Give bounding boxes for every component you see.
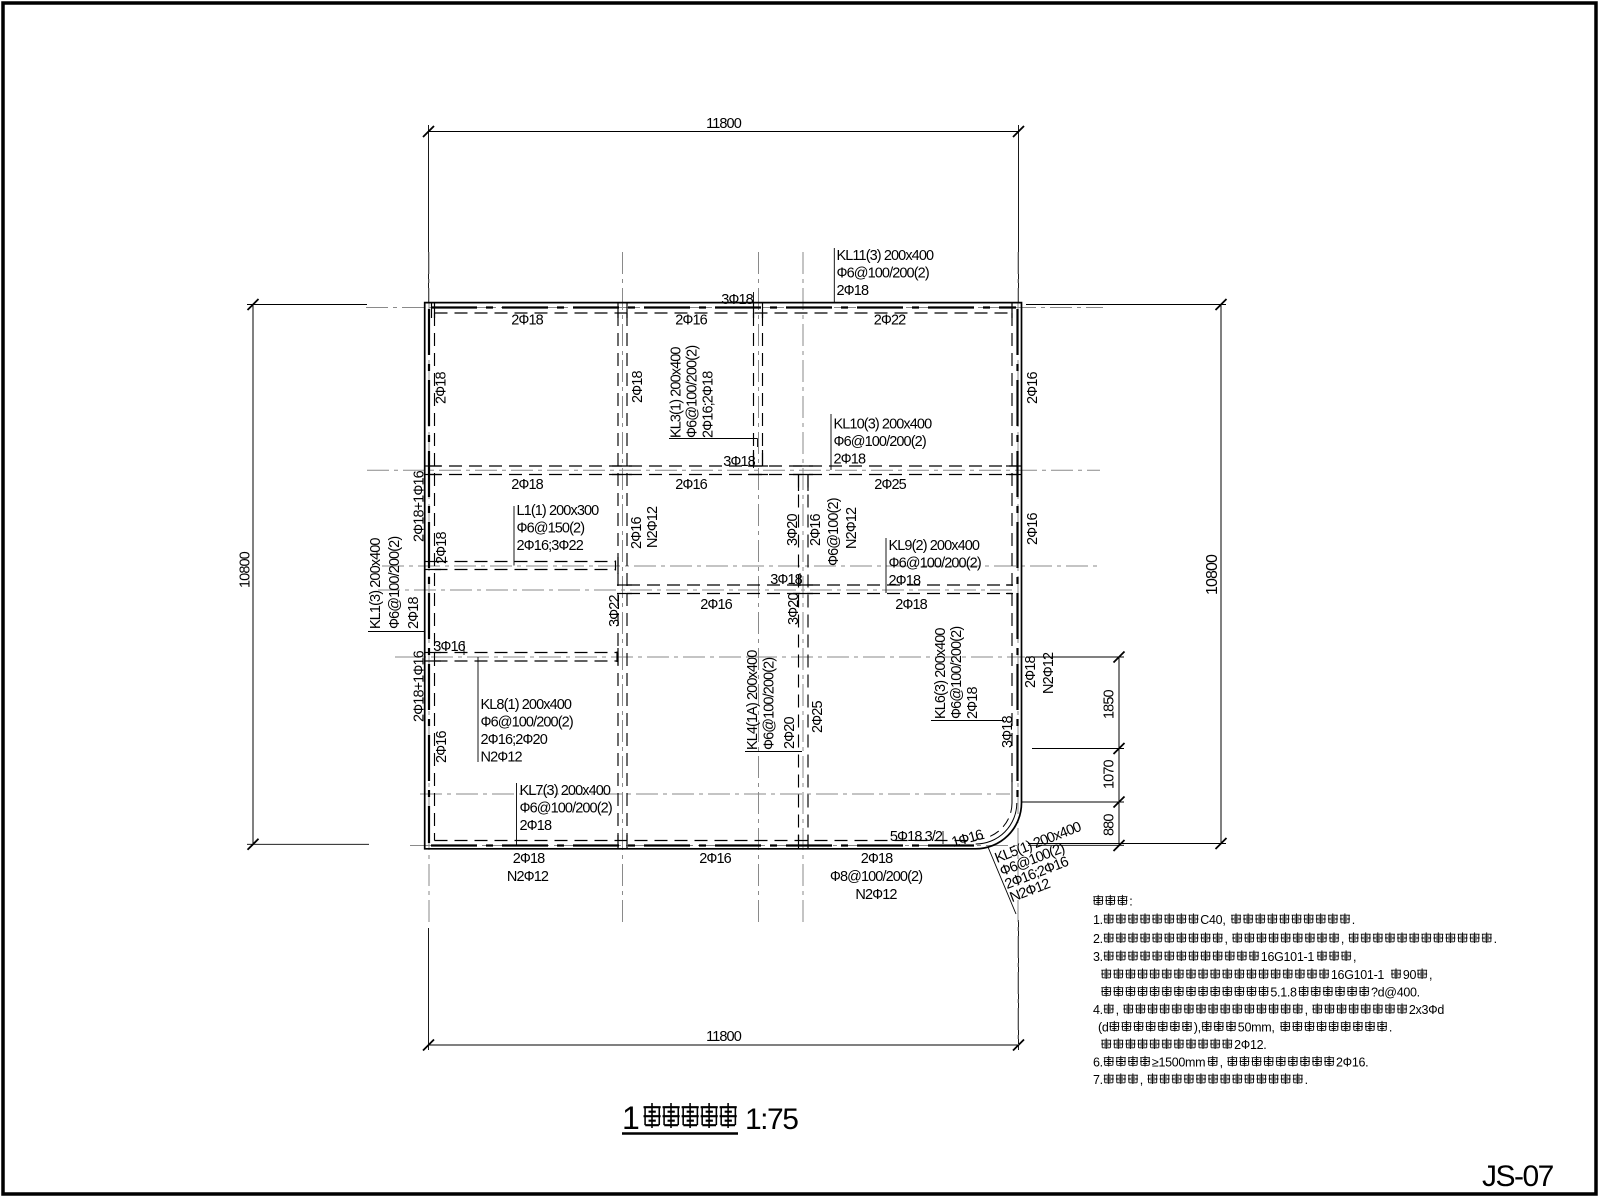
svg-text:880: 880 bbox=[1102, 814, 1118, 836]
svg-text:2Ф25: 2Ф25 bbox=[874, 477, 906, 493]
svg-text:2Ф16: 2Ф16 bbox=[699, 851, 731, 867]
svg-text:7.: 7. bbox=[1093, 1073, 1103, 1087]
svg-text:2Ф18: 2Ф18 bbox=[895, 597, 927, 613]
svg-text:KL6(3) 200x400: KL6(3) 200x400 bbox=[933, 628, 949, 719]
svg-text:2Ф18: 2Ф18 bbox=[837, 283, 869, 299]
svg-text:3Ф18: 3Ф18 bbox=[721, 292, 753, 308]
svg-text:N2Ф12: N2Ф12 bbox=[645, 506, 661, 548]
svg-text:2Ф25: 2Ф25 bbox=[810, 701, 826, 733]
svg-text:Ф6@150(2): Ф6@150(2) bbox=[517, 521, 585, 537]
svg-text:?d@400.: ?d@400. bbox=[1371, 986, 1420, 1000]
svg-text:KL1(3) 200x400: KL1(3) 200x400 bbox=[368, 538, 384, 629]
svg-text:1850: 1850 bbox=[1102, 690, 1118, 719]
svg-text:3Ф20: 3Ф20 bbox=[785, 514, 801, 546]
svg-text:N2Ф12: N2Ф12 bbox=[507, 869, 549, 885]
svg-text:3Ф20: 3Ф20 bbox=[786, 593, 802, 625]
svg-text:6.: 6. bbox=[1093, 1056, 1103, 1070]
svg-text:5.1.8: 5.1.8 bbox=[1270, 986, 1297, 1000]
svg-text:Ф6@100/200(2): Ф6@100/200(2) bbox=[685, 346, 701, 438]
svg-text:,: , bbox=[1116, 1003, 1119, 1017]
svg-text:2Ф18: 2Ф18 bbox=[630, 371, 646, 403]
svg-text:2Ф18: 2Ф18 bbox=[889, 573, 921, 589]
svg-text:KL4(1A) 200x400: KL4(1A) 200x400 bbox=[745, 650, 761, 750]
svg-text:,: , bbox=[1341, 932, 1344, 946]
svg-text:Ф6@100/200(2): Ф6@100/200(2) bbox=[387, 537, 403, 629]
svg-text:Ф6@100(2): Ф6@100(2) bbox=[826, 498, 842, 566]
svg-text:3Ф18: 3Ф18 bbox=[723, 454, 755, 470]
svg-text:2Ф16: 2Ф16 bbox=[675, 313, 707, 329]
svg-text:2Ф12.: 2Ф12. bbox=[1234, 1038, 1266, 1052]
svg-text:KL7(3) 200x400: KL7(3) 200x400 bbox=[520, 783, 611, 799]
svg-text:N2Ф12: N2Ф12 bbox=[855, 887, 897, 903]
svg-text:2Ф18+1Ф16: 2Ф18+1Ф16 bbox=[412, 470, 428, 542]
svg-text:C40,: C40, bbox=[1200, 913, 1225, 927]
svg-text:N2Ф12: N2Ф12 bbox=[481, 750, 523, 766]
svg-text:2Ф16: 2Ф16 bbox=[808, 514, 824, 546]
svg-text:11800: 11800 bbox=[706, 1029, 742, 1045]
svg-text:L1(1) 200x300: L1(1) 200x300 bbox=[517, 503, 600, 519]
svg-text:Ф6@100/200(2): Ф6@100/200(2) bbox=[481, 715, 573, 731]
svg-text:KL10(3) 200x400: KL10(3) 200x400 bbox=[834, 417, 933, 433]
svg-text:,: , bbox=[1220, 1056, 1223, 1070]
svg-text:2Ф16: 2Ф16 bbox=[434, 731, 450, 763]
svg-text:3Ф22: 3Ф22 bbox=[607, 595, 623, 627]
svg-text:90: 90 bbox=[1403, 968, 1417, 982]
svg-text:JS-07: JS-07 bbox=[1482, 1160, 1554, 1193]
svg-text:.: . bbox=[1305, 1073, 1308, 1087]
svg-text:2Ф16: 2Ф16 bbox=[1025, 513, 1041, 545]
svg-text:2Ф16: 2Ф16 bbox=[675, 477, 707, 493]
svg-text:2Ф16;2Ф18: 2Ф16;2Ф18 bbox=[701, 371, 717, 438]
svg-text:3Ф18: 3Ф18 bbox=[770, 572, 802, 588]
svg-text:2Ф18: 2Ф18 bbox=[406, 597, 422, 629]
svg-text:2Ф18: 2Ф18 bbox=[861, 851, 893, 867]
svg-text:4.: 4. bbox=[1093, 1003, 1103, 1017]
svg-text:Ф6@100/200(2): Ф6@100/200(2) bbox=[762, 658, 778, 750]
svg-text:16G101-1: 16G101-1 bbox=[1331, 968, 1385, 982]
svg-text:,: , bbox=[1353, 950, 1356, 964]
svg-text:2Ф20: 2Ф20 bbox=[782, 717, 798, 749]
svg-text:2Ф16;3Ф22: 2Ф16;3Ф22 bbox=[517, 538, 584, 554]
svg-text:.: . bbox=[1389, 1021, 1392, 1035]
svg-text:,: , bbox=[1140, 1073, 1143, 1087]
svg-text:1.: 1. bbox=[1093, 913, 1103, 927]
svg-text:Ф6@100/200(2): Ф6@100/200(2) bbox=[889, 556, 981, 572]
svg-text:50mm,: 50mm, bbox=[1238, 1021, 1275, 1035]
svg-text:KL8(1) 200x400: KL8(1) 200x400 bbox=[481, 697, 572, 713]
svg-text:2Ф16.: 2Ф16. bbox=[1336, 1056, 1368, 1070]
svg-text:,: , bbox=[1429, 968, 1432, 982]
svg-text:.: . bbox=[1352, 913, 1355, 927]
svg-text:3Ф18: 3Ф18 bbox=[1000, 716, 1016, 748]
svg-text:1070: 1070 bbox=[1102, 760, 1118, 789]
svg-text:10800: 10800 bbox=[1204, 554, 1221, 595]
svg-text:.: . bbox=[1494, 932, 1497, 946]
svg-text:2Ф18: 2Ф18 bbox=[511, 313, 543, 329]
svg-text:KL11(3) 200x400: KL11(3) 200x400 bbox=[837, 248, 935, 264]
svg-text:2Ф22: 2Ф22 bbox=[874, 313, 906, 329]
svg-text:Ф6@100/200(2): Ф6@100/200(2) bbox=[834, 434, 926, 450]
svg-text:11800: 11800 bbox=[706, 116, 742, 132]
svg-text:KL9(2) 200x400: KL9(2) 200x400 bbox=[889, 538, 980, 554]
svg-text:2Ф18: 2Ф18 bbox=[434, 372, 450, 404]
svg-text:≥1500mm: ≥1500mm bbox=[1152, 1056, 1205, 1070]
svg-text:),: ), bbox=[1194, 1021, 1201, 1035]
svg-text:N2Ф12: N2Ф12 bbox=[844, 507, 860, 549]
svg-text:Ф8@100/200(2): Ф8@100/200(2) bbox=[830, 869, 922, 885]
svg-text:2Ф18: 2Ф18 bbox=[434, 532, 450, 564]
svg-text:(d: (d bbox=[1098, 1021, 1109, 1035]
svg-text:2Ф16: 2Ф16 bbox=[629, 517, 645, 549]
svg-text:2Ф16: 2Ф16 bbox=[700, 597, 732, 613]
svg-text:,: , bbox=[1225, 932, 1228, 946]
svg-text:2Ф18: 2Ф18 bbox=[520, 818, 552, 834]
svg-text:2Ф18: 2Ф18 bbox=[1023, 656, 1039, 688]
svg-text:Ф6@100/200(2): Ф6@100/200(2) bbox=[520, 801, 612, 817]
svg-text:N2Ф12: N2Ф12 bbox=[1041, 652, 1057, 694]
svg-text:2Ф18+1Ф16: 2Ф18+1Ф16 bbox=[412, 650, 428, 722]
svg-text:2Ф16: 2Ф16 bbox=[1025, 372, 1041, 404]
svg-text:5Ф18 3/2: 5Ф18 3/2 bbox=[890, 829, 943, 845]
svg-text:2Ф16;2Ф20: 2Ф16;2Ф20 bbox=[481, 732, 548, 748]
svg-text:1:75: 1:75 bbox=[745, 1103, 798, 1136]
svg-text:2.: 2. bbox=[1093, 932, 1103, 946]
svg-text:,: , bbox=[1305, 1003, 1308, 1017]
svg-text:1: 1 bbox=[622, 1100, 640, 1136]
svg-text:2Ф18: 2Ф18 bbox=[834, 452, 866, 468]
svg-text:2Ф18: 2Ф18 bbox=[513, 851, 545, 867]
svg-text:Ф6@100/200(2): Ф6@100/200(2) bbox=[949, 627, 965, 719]
svg-text:3Ф16: 3Ф16 bbox=[433, 639, 465, 655]
svg-text:Ф6@100/200(2): Ф6@100/200(2) bbox=[837, 266, 929, 282]
svg-text:16G101-1: 16G101-1 bbox=[1261, 950, 1315, 964]
svg-text:KL3(1) 200x400: KL3(1) 200x400 bbox=[669, 347, 685, 438]
svg-text:2x3Фd: 2x3Фd bbox=[1409, 1003, 1444, 1017]
svg-text:10800: 10800 bbox=[238, 551, 254, 588]
svg-text:2Ф18: 2Ф18 bbox=[965, 687, 981, 719]
svg-text:2Ф18: 2Ф18 bbox=[511, 477, 543, 493]
svg-text:3.: 3. bbox=[1093, 950, 1103, 964]
svg-text::: : bbox=[1129, 895, 1132, 909]
